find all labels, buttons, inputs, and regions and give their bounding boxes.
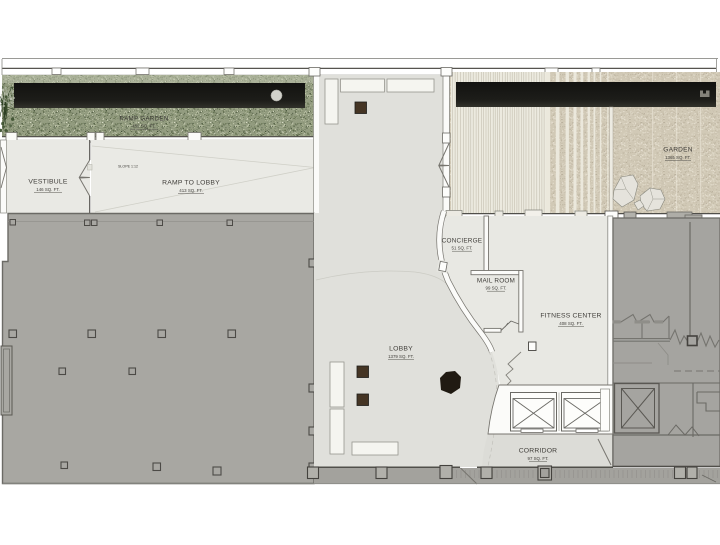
svg-text:1365 SQ. FT.: 1365 SQ. FT. [665, 155, 691, 160]
svg-text:SLOPE 1:12: SLOPE 1:12 [118, 165, 138, 169]
svg-text:LOBBY: LOBBY [389, 346, 413, 353]
svg-text:408 SQ. FT.: 408 SQ. FT. [559, 321, 582, 326]
svg-text:MAIL ROOM: MAIL ROOM [477, 278, 515, 285]
svg-text:CONCIERGE: CONCIERGE [442, 238, 483, 245]
svg-text:FITNESS CENTER: FITNESS CENTER [540, 313, 601, 320]
svg-text:1379 SQ. FT.: 1379 SQ. FT. [388, 354, 414, 359]
svg-text:GARDEN: GARDEN [663, 147, 692, 154]
svg-text:51 SQ. FT.: 51 SQ. FT. [452, 246, 473, 251]
svg-text:97 SQ. FT.: 97 SQ. FT. [528, 456, 549, 461]
svg-text:VESTIBULE: VESTIBULE [28, 179, 67, 186]
svg-text:413 SQ. FT.: 413 SQ. FT. [179, 188, 202, 193]
svg-text:CORRIDOR: CORRIDOR [519, 448, 558, 455]
svg-text:RAMP TO LOBBY: RAMP TO LOBBY [162, 180, 220, 187]
svg-text:RAMP GARDEN: RAMP GARDEN [119, 116, 168, 123]
svg-text:452 SQ. FT.: 452 SQ. FT. [132, 124, 155, 129]
svg-text:146 SQ. FT.: 146 SQ. FT. [36, 187, 59, 192]
svg-text:99 SQ. FT.: 99 SQ. FT. [486, 286, 507, 291]
